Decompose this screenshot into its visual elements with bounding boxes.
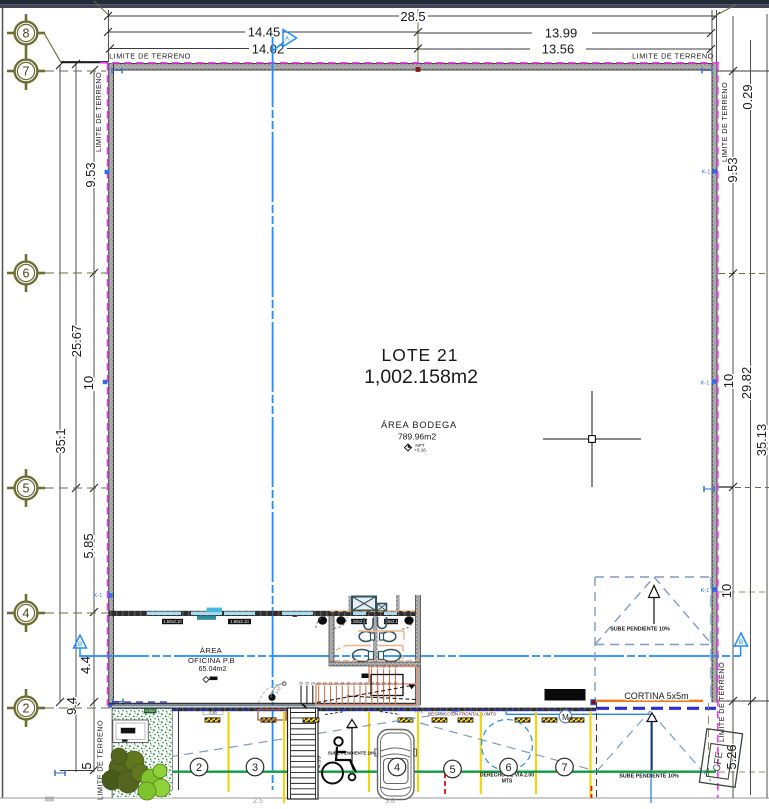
svg-text:0.40: 0.40 — [209, 711, 216, 715]
svg-text:10: 10 — [719, 584, 734, 598]
svg-text:6: 6 — [505, 762, 511, 774]
svg-text:29.82: 29.82 — [739, 367, 754, 400]
svg-text:25: 25 — [305, 682, 309, 686]
svg-text:9.53: 9.53 — [83, 162, 98, 187]
svg-text:13.56: 13.56 — [542, 42, 575, 57]
svg-text:K-1: K-1 — [94, 593, 103, 599]
svg-text:1.50x2.10: 1.50x2.10 — [163, 619, 182, 624]
svg-text:LIMITE DE TERRENO: LIMITE DE TERRENO — [720, 82, 729, 162]
svg-text:0.29: 0.29 — [740, 84, 755, 109]
svg-text:24: 24 — [311, 682, 315, 686]
svg-text:1.50x2.10: 1.50x2.10 — [382, 619, 401, 624]
svg-text:K-1: K-1 — [701, 381, 710, 387]
svg-text:3.8: 3.8 — [385, 798, 395, 804]
svg-text:4: 4 — [394, 762, 400, 774]
svg-text:7: 7 — [561, 762, 567, 774]
svg-text:5.85: 5.85 — [81, 533, 96, 558]
svg-text:21: 21 — [329, 682, 333, 686]
svg-text:5: 5 — [395, 665, 397, 669]
svg-text:2: 2 — [23, 701, 30, 715]
svg-text:35.1: 35.1 — [53, 428, 68, 453]
svg-text:26: 26 — [299, 682, 303, 686]
svg-text:7: 7 — [23, 64, 30, 78]
svg-text:LIMITE DE TERRENO: LIMITE DE TERRENO — [109, 52, 191, 61]
svg-text:1.50x2.10: 1.50x2.10 — [230, 619, 249, 624]
svg-text:2.5: 2.5 — [253, 798, 263, 804]
svg-text:14.02: 14.02 — [252, 42, 285, 57]
svg-text:12: 12 — [382, 682, 386, 686]
svg-text:10: 10 — [721, 374, 736, 388]
svg-text:18: 18 — [346, 682, 350, 686]
svg-text:1: 1 — [371, 665, 373, 669]
svg-text:SUBE PENDIENTE 10%: SUBE PENDIENTE 10% — [619, 774, 679, 780]
svg-text:SUBE PENDIENTE 10%: SUBE PENDIENTE 10% — [328, 751, 377, 756]
svg-text:13.99: 13.99 — [545, 26, 578, 41]
svg-text:28.5: 28.5 — [400, 9, 425, 24]
svg-text:22: 22 — [323, 682, 327, 686]
svg-text:20: 20 — [335, 682, 339, 686]
svg-text:VERDE: VERDE — [145, 709, 156, 713]
svg-text:B: B — [739, 639, 743, 646]
svg-text:CORTINA 5x5m: CORTINA 5x5m — [624, 691, 688, 701]
svg-text:1.50x2.10: 1.50x2.10 — [350, 619, 369, 624]
svg-text:5: 5 — [449, 764, 455, 776]
svg-text:65.04m2: 65.04m2 — [199, 664, 227, 673]
svg-text:5: 5 — [79, 762, 94, 769]
svg-text:15: 15 — [364, 682, 368, 686]
svg-text:16: 16 — [358, 682, 362, 686]
svg-text:13: 13 — [376, 682, 380, 686]
svg-text:14.45: 14.45 — [248, 25, 281, 40]
svg-text:1,002.158m2: 1,002.158m2 — [364, 366, 478, 388]
svg-text:SUBE PENDIENTE 10%: SUBE PENDIENTE 10% — [610, 627, 670, 633]
svg-text:2: 2 — [377, 665, 379, 669]
svg-text:4: 4 — [23, 606, 30, 620]
svg-text:2: 2 — [196, 762, 202, 774]
svg-text:LIMITE DE TERRENO: LIMITE DE TERRENO — [94, 72, 103, 152]
svg-text:5: 5 — [23, 481, 30, 495]
svg-text:4.4: 4.4 — [78, 656, 93, 674]
svg-text:ÁREA BODEGA: ÁREA BODEGA — [381, 420, 457, 430]
svg-text:3: 3 — [252, 762, 258, 774]
svg-text:17: 17 — [352, 682, 356, 686]
svg-text:10: 10 — [81, 376, 96, 390]
svg-text:K-1: K-1 — [701, 588, 710, 594]
svg-text:ÁREA: ÁREA — [200, 646, 223, 655]
svg-text:10: 10 — [394, 682, 398, 686]
svg-text:LOTE 21: LOTE 21 — [381, 345, 458, 365]
svg-text:35.13: 35.13 — [754, 424, 769, 457]
svg-text:MTS: MTS — [502, 779, 513, 785]
svg-text:+0.16: +0.16 — [414, 448, 426, 453]
svg-text:23: 23 — [317, 682, 321, 686]
svg-text:LIMITE DE TERRENO: LIMITE DE TERRENO — [632, 52, 714, 61]
svg-text:19: 19 — [340, 682, 344, 686]
svg-text:4: 4 — [389, 665, 391, 669]
svg-text:25.67: 25.67 — [69, 325, 84, 358]
svg-text:14: 14 — [370, 682, 374, 686]
svg-text:M: M — [562, 713, 569, 722]
svg-text:3: 3 — [383, 665, 385, 669]
svg-text:LIMITE DE TERRENO: LIMITE DE TERRENO — [96, 720, 105, 800]
svg-text:8: 8 — [23, 26, 30, 40]
svg-text:B: B — [78, 641, 82, 648]
svg-text:A: A — [285, 37, 289, 43]
svg-text:6: 6 — [23, 266, 30, 280]
svg-text:11: 11 — [388, 682, 392, 686]
svg-text:789.96m2: 789.96m2 — [398, 432, 436, 442]
svg-text:9.4: 9.4 — [64, 697, 79, 715]
svg-text:K-1: K-1 — [702, 170, 711, 176]
